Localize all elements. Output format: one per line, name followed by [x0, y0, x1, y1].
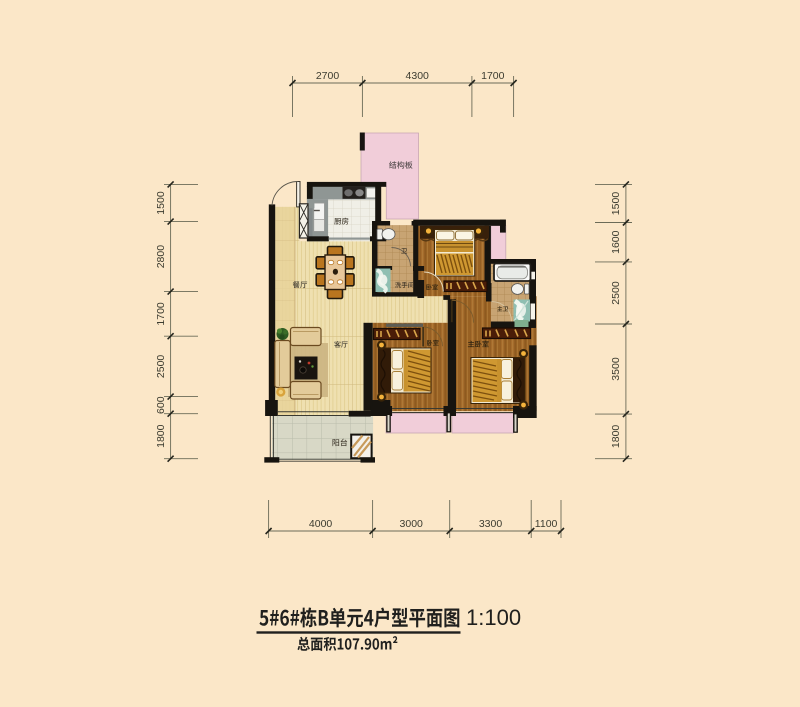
svg-text:4300: 4300: [406, 70, 430, 82]
svg-text:1700: 1700: [155, 302, 167, 326]
svg-text:1500: 1500: [610, 192, 622, 216]
svg-text:1800: 1800: [610, 425, 622, 449]
svg-text:1800: 1800: [155, 424, 167, 448]
svg-text:3300: 3300: [479, 518, 503, 530]
svg-text:3500: 3500: [610, 357, 622, 381]
svg-text:3000: 3000: [400, 518, 424, 530]
svg-text:2800: 2800: [155, 245, 167, 269]
svg-text:1600: 1600: [610, 230, 622, 254]
svg-text:2700: 2700: [316, 70, 340, 82]
svg-text:1700: 1700: [481, 70, 505, 82]
svg-text:4000: 4000: [309, 518, 333, 530]
svg-text:1100: 1100: [535, 518, 558, 530]
svg-text:1:100: 1:100: [466, 605, 521, 630]
svg-text:600: 600: [155, 396, 167, 414]
svg-text:2500: 2500: [610, 281, 622, 305]
svg-text:2500: 2500: [155, 355, 167, 379]
svg-text:1500: 1500: [155, 191, 167, 215]
